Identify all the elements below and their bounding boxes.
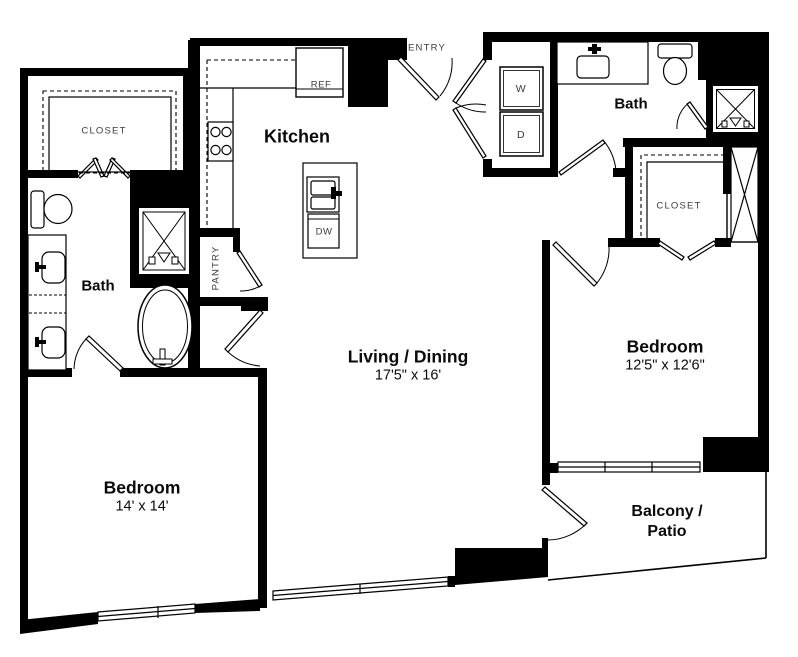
bath-left-door [74, 336, 123, 371]
refrigerator-icon [296, 48, 343, 97]
stove-icon [208, 122, 233, 161]
wall-bedroomright-top-a [608, 238, 660, 247]
wall-bedroomright-left [542, 240, 550, 485]
wall-kitchen-top [190, 38, 350, 46]
wall-bedroomleft-right [258, 368, 267, 608]
shower-left-icon [138, 207, 190, 275]
linen-closet-x [731, 147, 758, 242]
wall-bottom-bedroomleft-b [195, 599, 260, 613]
wall-pantry-top [188, 228, 240, 237]
island-sink-icon [307, 177, 342, 212]
wall-wd-left-top [483, 42, 492, 60]
toilet-right-icon [658, 44, 692, 85]
floorplan-drawing [0, 0, 798, 657]
wall-topright [483, 32, 769, 42]
wall-topleft [20, 68, 190, 76]
closet-left-bifold [78, 158, 130, 178]
bedroom-left-door [225, 310, 263, 366]
balcony-edge-bottom [548, 558, 766, 580]
wall-closetright-left [625, 138, 633, 247]
dishwasher-icon [308, 214, 339, 248]
window-bedroom-right [558, 462, 700, 472]
wall-window-stub-right [550, 463, 558, 473]
windows [98, 462, 700, 621]
bedroom-right-door [553, 242, 609, 286]
closet-right-shelving [641, 155, 727, 243]
window-living [273, 577, 448, 600]
wall-block-living-br [455, 538, 548, 585]
wall-bottom-bedroomleft-a [20, 612, 98, 634]
window-bedroom-left [98, 604, 195, 621]
washer-icon [500, 67, 543, 110]
bathtub-icon [138, 285, 192, 368]
toilet-left-icon [31, 191, 72, 228]
wall-bathleft-bottom-b [120, 368, 258, 377]
closet-left-shelving [43, 91, 176, 173]
wall-closetright-divider [723, 147, 731, 194]
shower-right-icon [712, 85, 759, 133]
wall-pantry-right-stub [233, 237, 240, 252]
dryer-icon [500, 112, 543, 156]
washer-dryer [500, 67, 543, 156]
kitchen-island [303, 163, 357, 258]
wall-closetright-top [623, 138, 769, 147]
wall-left-exterior [20, 68, 28, 624]
walls [20, 32, 769, 634]
wall-bedroomright-top-b [715, 238, 731, 247]
wall-entry-stub [380, 38, 407, 60]
pantry-door [237, 251, 262, 291]
vanity-right [557, 42, 648, 84]
floorplan-page: CLOSET Kitchen ENTRY REF DW PANTRY W D B… [0, 0, 798, 657]
wall-living-bottom-stub [448, 576, 455, 587]
bath-right-door [559, 140, 616, 175]
wd-bifold-doors [453, 59, 486, 158]
wall-block-br [703, 437, 769, 472]
entry-door [398, 57, 452, 100]
closet-right-door [677, 102, 708, 129]
wall-pantry-corner [241, 297, 268, 311]
vanity-left [28, 235, 66, 370]
kitchen-fixtures [200, 48, 357, 258]
wall-wd-bottom [483, 168, 558, 177]
closet-right-bifold [658, 241, 716, 260]
balcony-door [542, 487, 587, 540]
